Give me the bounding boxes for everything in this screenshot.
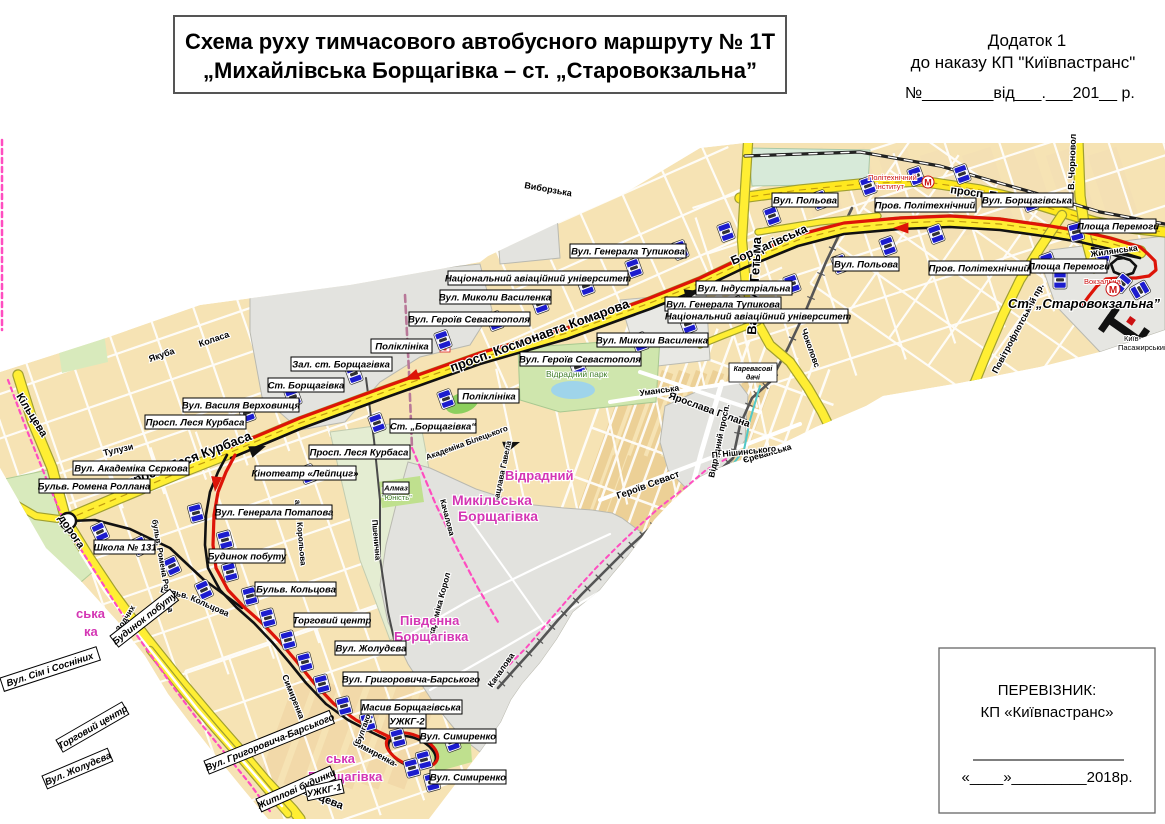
svg-text:Микільська: Микільська <box>452 492 532 508</box>
svg-text:Пасажирський: Пасажирський <box>1118 343 1165 352</box>
svg-text:УЖКГ-2: УЖКГ-2 <box>389 716 425 727</box>
svg-text:Схема руху тимчасового автобус: Схема руху тимчасового автобусного маршр… <box>185 29 776 54</box>
svg-text:Бульв. Кольцова: Бульв. Кольцова <box>256 584 336 595</box>
svg-text:Школа № 131: Школа № 131 <box>93 542 156 553</box>
svg-text:Національний авіаційний універ: Національний авіаційний університет <box>665 311 852 322</box>
svg-text:В. Чорновол: В. Чорновол <box>1066 133 1078 190</box>
svg-text:Київ-: Київ- <box>1124 334 1142 343</box>
svg-text:Вул. Миколи Василенка: Вул. Миколи Василенка <box>596 335 708 346</box>
svg-text:„Михайлівська Борщагівка – ст.: „Михайлівська Борщагівка – ст. „Старовок… <box>203 58 757 83</box>
svg-text:Вул. Академіка Сєркова: Вул. Академіка Сєркова <box>74 463 188 474</box>
svg-text:Каревасові: Каревасові <box>734 365 774 373</box>
svg-text:до наказу КП "Київпастранс": до наказу КП "Київпастранс" <box>911 53 1136 72</box>
svg-text:Масив Борщагівська: Масив Борщагівська <box>361 702 461 713</box>
svg-text:Пров. Політехнічний: Пров. Політехнічний <box>929 263 1030 274</box>
svg-text:Відрадний парк: Відрадний парк <box>546 369 608 379</box>
svg-text:Просп. Леся Курбаса: Просп. Леся Курбаса <box>310 447 409 458</box>
svg-text:Відрадний: Відрадний <box>505 468 574 483</box>
svg-text:Алмаз: Алмаз <box>383 483 408 492</box>
svg-text:Вул. Симиренко: Вул. Симиренко <box>420 731 496 742</box>
svg-text:Вул. Польова: Вул. Польова <box>834 259 898 270</box>
svg-text:дачі: дачі <box>746 374 761 382</box>
svg-text:інститут: інститут <box>876 182 904 191</box>
svg-text:Просп. Леся Курбаса: Просп. Леся Курбаса <box>146 417 245 428</box>
svg-text:Вул. Генерала Тупикова: Вул. Генерала Тупикова <box>571 246 685 257</box>
svg-text:ка: ка <box>84 624 99 639</box>
svg-text:Борщагівка: Борщагівка <box>458 508 538 524</box>
svg-text:Вул. Індустріальна: Вул. Індустріальна <box>698 283 791 294</box>
svg-text:Ст. Борщагівка: Ст. Борщагівка <box>268 380 345 391</box>
svg-text:ська: ська <box>76 606 106 621</box>
svg-text:Ст. „Старовокзальна”: Ст. „Старовокзальна” <box>1008 296 1161 311</box>
svg-text:КП «Київпастранс»: КП «Київпастранс» <box>981 704 1114 721</box>
svg-text:Національний авіаційний універ: Національний авіаційний університет <box>445 273 632 284</box>
svg-text:Вул. Героїв Севастополя: Вул. Героїв Севастополя <box>519 354 641 365</box>
svg-text:Вул. Генерала Потапова: Вул. Генерала Потапова <box>215 507 334 518</box>
svg-text:Політехнічний: Політехнічний <box>868 173 917 182</box>
svg-text:М: М <box>1109 285 1117 296</box>
svg-text:Бульв. Ромена Роллана: Бульв. Ромена Роллана <box>38 481 151 492</box>
svg-text:Торговий центр: Торговий центр <box>293 615 372 626</box>
svg-text:Південна: Південна <box>400 613 460 628</box>
svg-text:Пров. Політехнічний: Пров. Політехнічний <box>875 200 976 211</box>
svg-text:Вул. Польова: Вул. Польова <box>773 195 837 206</box>
svg-text:Площа Перемоги: Площа Перемоги <box>1077 221 1159 232</box>
svg-text:Вул. Миколи Василенка: Вул. Миколи Василенка <box>439 292 551 303</box>
svg-text:Поліклініка: Поліклініка <box>462 391 515 402</box>
svg-text:Вул. Григоровича-Барського: Вул. Григоровича-Барського <box>342 674 480 685</box>
svg-text:Вул. Борщагівська: Вул. Борщагівська <box>982 195 1072 206</box>
svg-text:№________від___.___201__ р.: №________від___.___201__ р. <box>905 85 1135 102</box>
svg-text:М: М <box>924 178 932 188</box>
svg-text:Додаток 1: Додаток 1 <box>988 31 1066 50</box>
svg-text:ська: ська <box>326 751 356 766</box>
svg-text:Кінотеатр «Лейпциг»: Кінотеатр «Лейпциг» <box>252 468 359 479</box>
svg-text:Вул. Жолудєва: Вул. Жолудєва <box>336 643 407 654</box>
svg-text:Вул. Героїв Севастополя: Вул. Героїв Севастополя <box>408 314 530 325</box>
svg-text:Будинок побуту: Будинок побуту <box>208 551 287 562</box>
svg-text:Ст. „Борщагівка“: Ст. „Борщагівка“ <box>390 421 476 432</box>
svg-text:ПЕРЕВІЗНИК:: ПЕРЕВІЗНИК: <box>998 682 1097 699</box>
svg-text:«____»_________2018р.: «____»_________2018р. <box>961 769 1132 786</box>
svg-text:Зал. ст. Борщагівка: Зал. ст. Борщагівка <box>292 359 390 370</box>
svg-text:Вул. Василя Верховинця: Вул. Василя Верховинця <box>182 400 301 411</box>
svg-text:Вул. Симиренко: Вул. Симиренко <box>430 772 506 783</box>
svg-text:Площа Перемоги: Площа Перемоги <box>1028 261 1110 272</box>
svg-text:Поліклініка: Поліклініка <box>375 341 428 352</box>
